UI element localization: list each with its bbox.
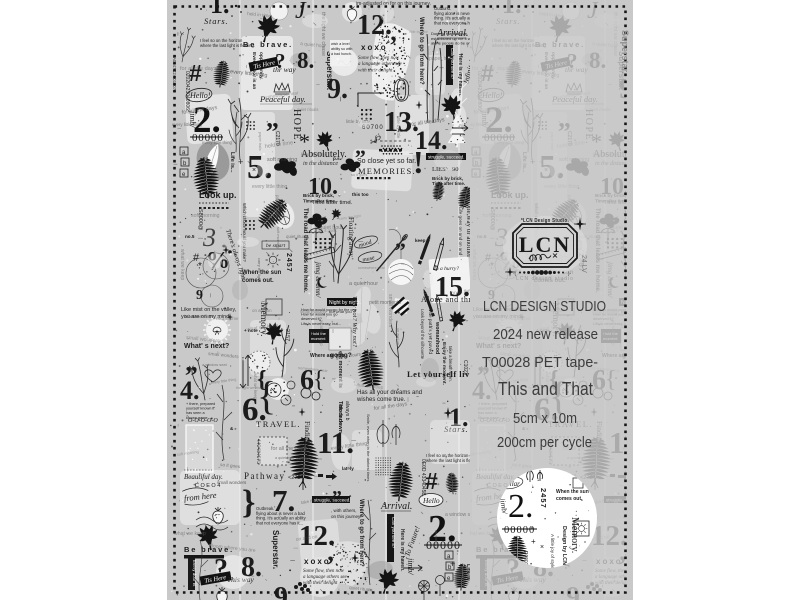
svg-text:LCN: LCN — [519, 232, 571, 257]
svg-text:T00028 PET tape-: T00028 PET tape- — [482, 355, 598, 371]
svg-text:24 LV: 24 LV — [580, 255, 587, 273]
svg-text:Design by LCN: Design by LCN — [561, 526, 567, 565]
svg-text:200cm per cycle: 200cm per cycle — [497, 435, 592, 451]
svg-text:Superstar.: Superstar. — [620, 30, 630, 74]
svg-text:×: × — [540, 544, 544, 551]
svg-text:comes out.: comes out. — [556, 496, 583, 502]
svg-text:When the sun: When the sun — [556, 489, 589, 495]
svg-text:LCN design studio: LCN design studio — [516, 276, 574, 282]
svg-text:5cm x 10m: 5cm x 10m — [513, 411, 577, 427]
svg-text:2.: 2. — [508, 488, 534, 525]
svg-text:This and That: This and That — [498, 379, 593, 399]
svg-text:LCN DESIGN STUDIO: LCN DESIGN STUDIO — [483, 299, 606, 315]
svg-text:+: + — [531, 537, 536, 546]
svg-text:00000: 00000 — [504, 525, 535, 536]
svg-text:Memory.: Memory. — [569, 517, 580, 553]
svg-text:2024 new release: 2024 new release — [493, 327, 598, 343]
svg-text:2457: 2457 — [539, 488, 548, 509]
